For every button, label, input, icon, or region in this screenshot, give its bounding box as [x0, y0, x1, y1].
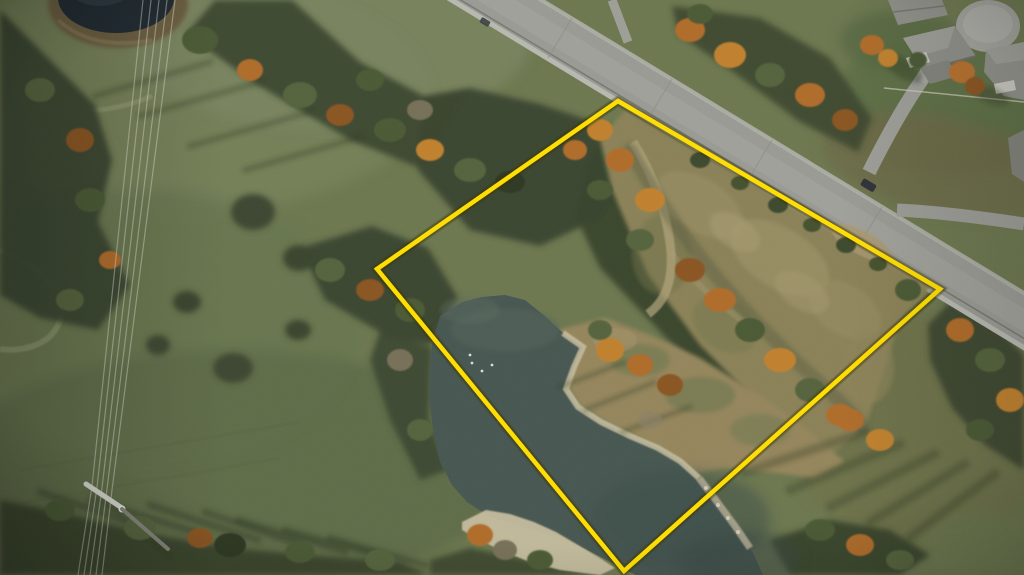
- film-grain: [0, 0, 1024, 575]
- aerial-photo-canvas: [0, 0, 1024, 575]
- aerial-photo: [0, 0, 1024, 575]
